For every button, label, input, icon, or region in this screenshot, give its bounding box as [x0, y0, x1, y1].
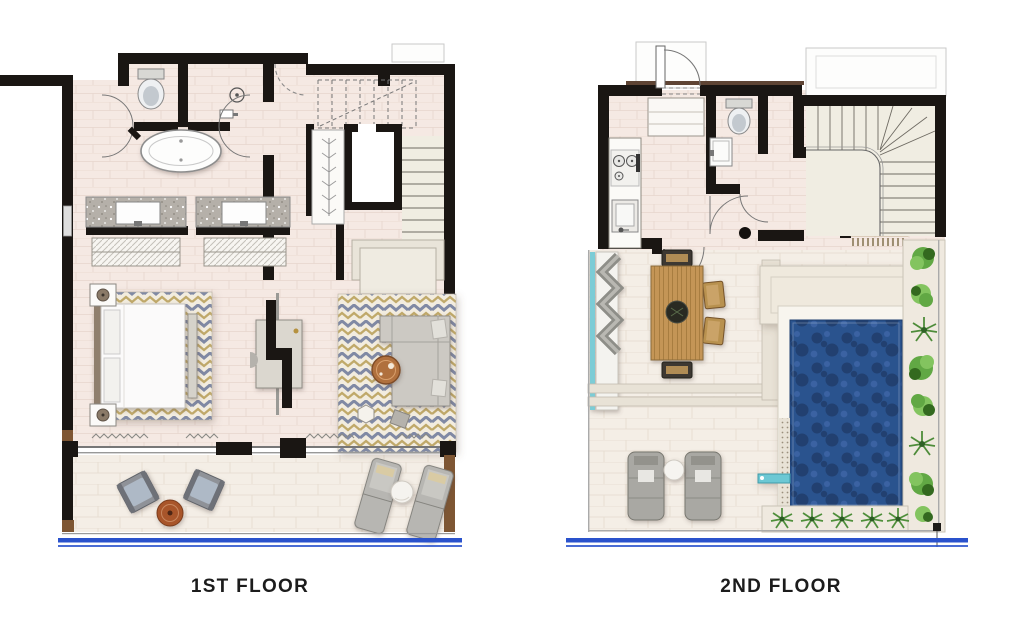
floor-plans-drawing [0, 0, 1024, 560]
bathtub [141, 130, 221, 172]
glass-balustrade-second [566, 538, 968, 547]
balcony-ball-table [391, 481, 413, 503]
pool [758, 266, 920, 520]
wood-jamb [62, 430, 73, 441]
wardrobe-right [204, 238, 286, 266]
terrace-lounger-1 [628, 452, 664, 520]
floor-label-1st: 1ST FLOOR [191, 576, 309, 598]
first-floor-plan [0, 44, 462, 547]
terrace-lounger-2 [685, 452, 721, 520]
wardrobe-left [92, 238, 180, 266]
terrace-wall-cap [626, 81, 804, 85]
second-floor-plan [566, 42, 968, 547]
toilet-second [726, 99, 752, 134]
floor-plan-canvas: 1ST FLOOR 2ND FLOOR [0, 0, 1024, 639]
vanity-left [86, 197, 186, 227]
balcony-round-table [157, 500, 183, 526]
toilet [138, 69, 164, 109]
column [739, 227, 751, 239]
vanity-right [196, 197, 290, 227]
glass-balustrade-first [58, 533, 462, 547]
roof-edge-stairs [806, 48, 946, 96]
terrace-ball-table [664, 460, 684, 480]
hall-closet [312, 130, 344, 224]
staircase-second-floor [806, 106, 935, 236]
roof-edge [392, 44, 444, 62]
kitchen-counter [609, 138, 641, 248]
nightstand-bottom [90, 404, 116, 426]
wc-sink [710, 138, 732, 166]
coffee-table [372, 356, 400, 384]
entry-closet [648, 98, 704, 136]
balcony-post-left [62, 520, 74, 532]
bed [94, 304, 197, 408]
planter-bottom [762, 506, 909, 532]
pool-water [790, 320, 902, 508]
floor-label-2nd: 2ND FLOOR [720, 576, 841, 598]
side-table [358, 405, 374, 423]
nightstand-top [90, 284, 116, 306]
window-slit [64, 206, 72, 236]
